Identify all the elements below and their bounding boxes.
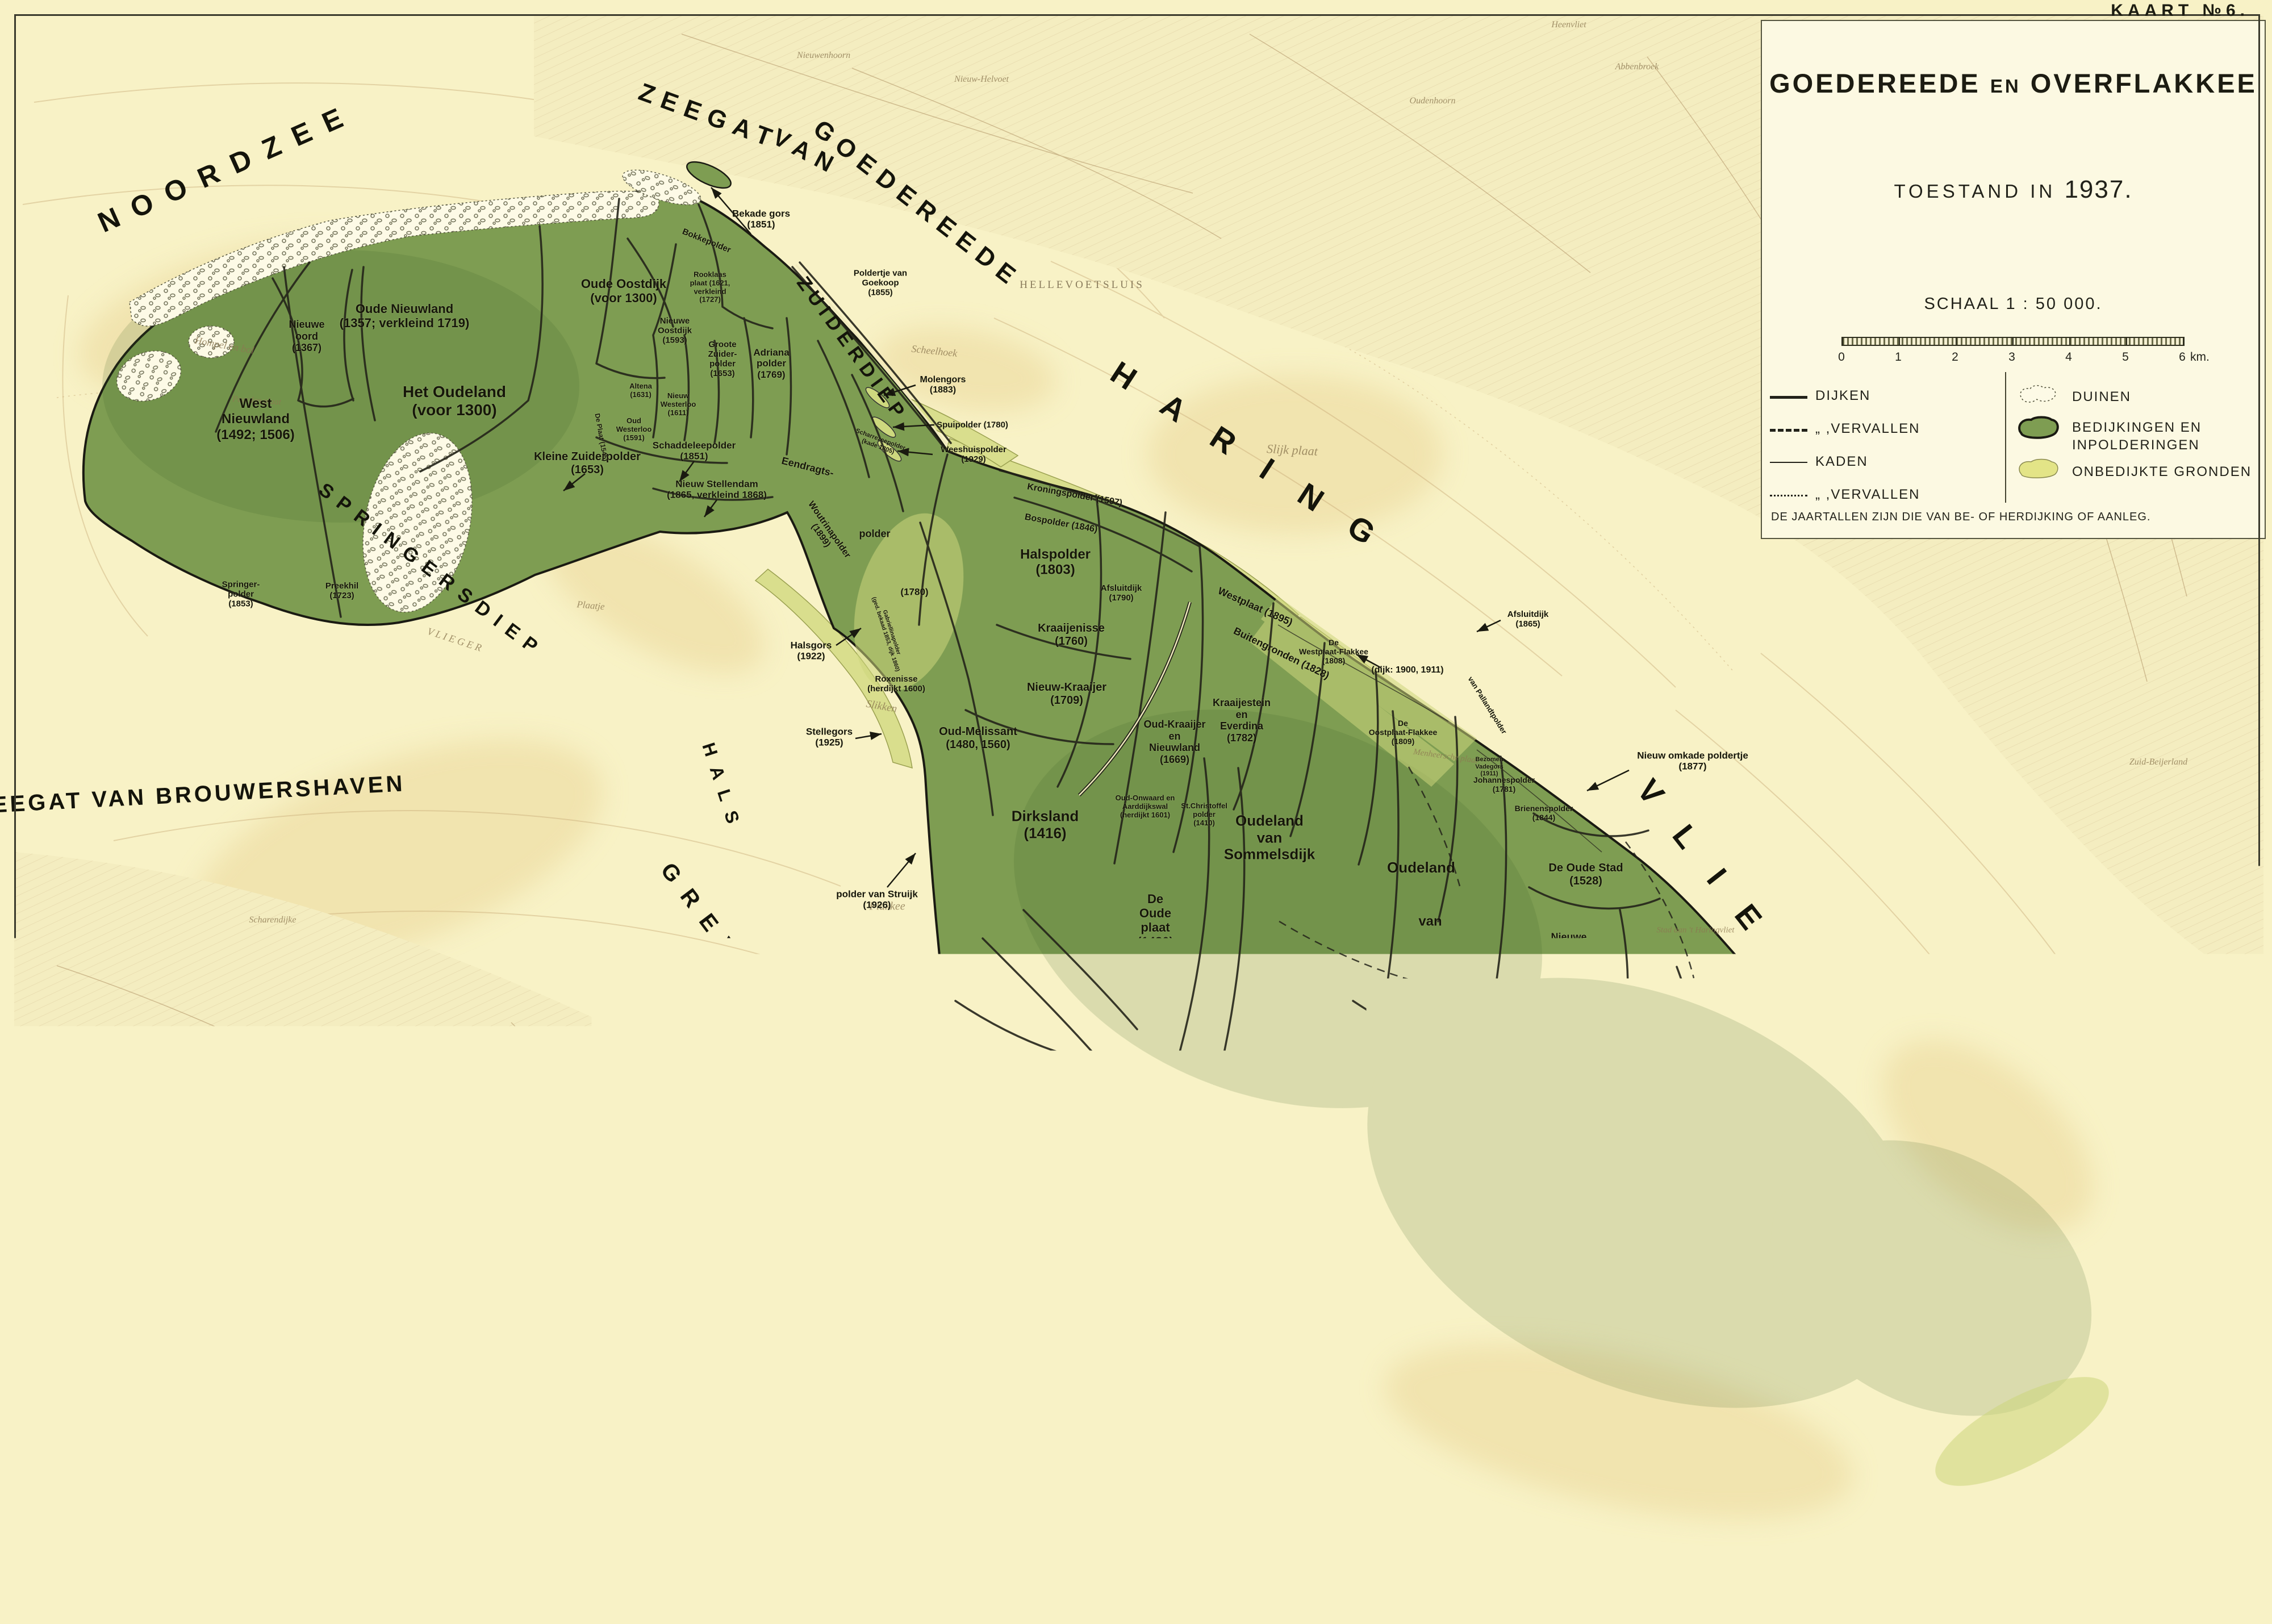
legend-sample-kaden-vervallen	[1770, 495, 1807, 496]
legend-label-bedijkt: BEDIJKINGEN EN INPOLDERINGEN	[2072, 419, 2254, 454]
logo-caption-line2: 1901 - 2001	[1891, 1560, 2187, 1579]
map-title-en: EN	[1990, 76, 2021, 97]
scale-tick-number: 2	[1952, 350, 1958, 364]
scale-tick-number: 6	[2179, 350, 2186, 364]
scale-text: SCHAAL 1 : 50 000.	[1762, 295, 2265, 314]
legend-sample-dijken-vervallen	[1770, 429, 1807, 432]
map-title: GOEDEREEDE EN OVERFLAKKEE	[1762, 68, 2265, 99]
scale-tick	[1956, 337, 1957, 345]
scale-bar-numbers: 0123456km.	[1841, 350, 2239, 364]
legend-sample-dijken	[1770, 396, 1807, 399]
bedijkt-swatch-icon	[2015, 415, 2061, 441]
legend-divider	[2005, 372, 2006, 503]
compass-star	[1993, 1475, 2072, 1525]
scale-tick-number: 4	[2065, 350, 2072, 364]
scale-tick	[2126, 337, 2127, 345]
subtitle-year: 1937.	[2064, 176, 2132, 203]
duinen-swatch-icon	[2015, 382, 2061, 405]
logo-caption-line1: Een eeuw Rabobank Middelharnis	[1891, 1539, 2187, 1558]
legend-label-duinen: DUINEN	[2072, 388, 2254, 406]
scale-tick	[1899, 337, 1900, 345]
scale-tick	[2069, 337, 2070, 345]
scale-tick	[2012, 337, 2014, 345]
scale-tick-number: 5	[2122, 350, 2129, 364]
sheet-number: KAART №6.	[2111, 1, 2249, 20]
legend-label-kaden-vervallen: „ ,VERVALLEN	[1815, 487, 1920, 503]
scale-tick-number: 3	[2008, 350, 2015, 364]
scale-tick	[2183, 337, 2184, 345]
map-stage: NOORDZEEZEEGATVANGOEDEREEDEZUIDERDIEPHAR…	[0, 0, 2272, 1624]
scale-unit: km.	[2190, 350, 2210, 364]
legend-label-kaden: KADEN	[1815, 454, 1868, 470]
map-title-a: GOEDEREEDE	[1769, 68, 1981, 98]
legend-label-onbedijkt: ONBEDIJKTE GRONDEN	[2072, 463, 2254, 481]
map-title-b: OVERFLAKKEE	[2031, 68, 2257, 98]
onbedijkt-swatch-icon	[2015, 457, 2061, 481]
map-subtitle: TOESTAND IN 1937.	[1762, 176, 2265, 204]
subtitle-text: TOESTAND IN	[1894, 181, 2056, 202]
title-panel: GOEDEREEDE EN OVERFLAKKEE TOESTAND IN 19…	[1761, 20, 2266, 539]
scale-bar	[1841, 337, 2185, 346]
legend-label-dijken: DIJKEN	[1815, 388, 1870, 404]
legend-footnote: DE JAARTALLEN ZIJN DIE VAN BE- OF HERDIJ…	[1771, 511, 2150, 524]
scale-tick-number: 1	[1895, 350, 1902, 364]
logo-caption: Een eeuw Rabobank Middelharnis 1901 - 20…	[1891, 1539, 2187, 1579]
scale-tick	[1842, 337, 1843, 345]
legend-sample-kaden	[1770, 462, 1807, 463]
scale-tick-number: 0	[1838, 350, 1845, 364]
legend-label-dijken-vervallen: „ ,VERVALLEN	[1815, 421, 1920, 437]
